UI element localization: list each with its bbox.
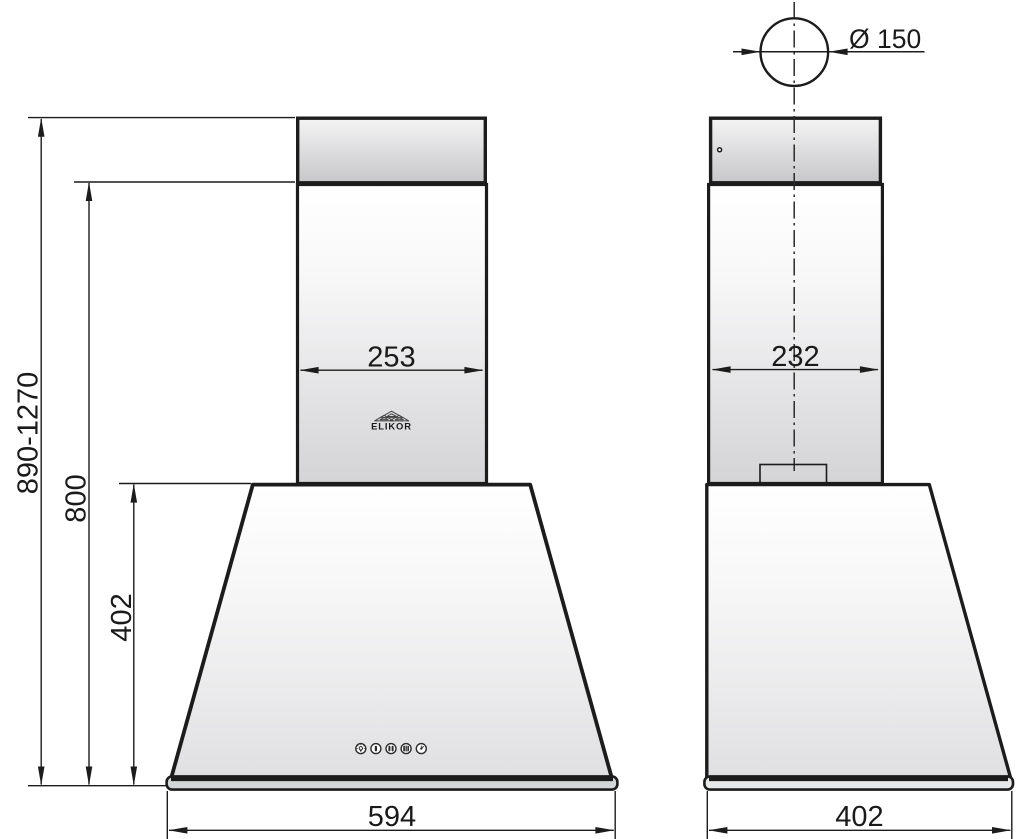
- svg-text:253: 253: [367, 342, 415, 374]
- svg-text:Ø 150: Ø 150: [849, 24, 921, 54]
- svg-text:ELIKOR: ELIKOR: [371, 420, 412, 431]
- svg-text:402: 402: [835, 801, 883, 833]
- svg-text:402: 402: [106, 593, 138, 641]
- svg-text:594: 594: [368, 801, 416, 833]
- svg-text:232: 232: [771, 341, 819, 373]
- svg-text:800: 800: [61, 474, 93, 522]
- svg-text:890-1270: 890-1270: [13, 372, 45, 495]
